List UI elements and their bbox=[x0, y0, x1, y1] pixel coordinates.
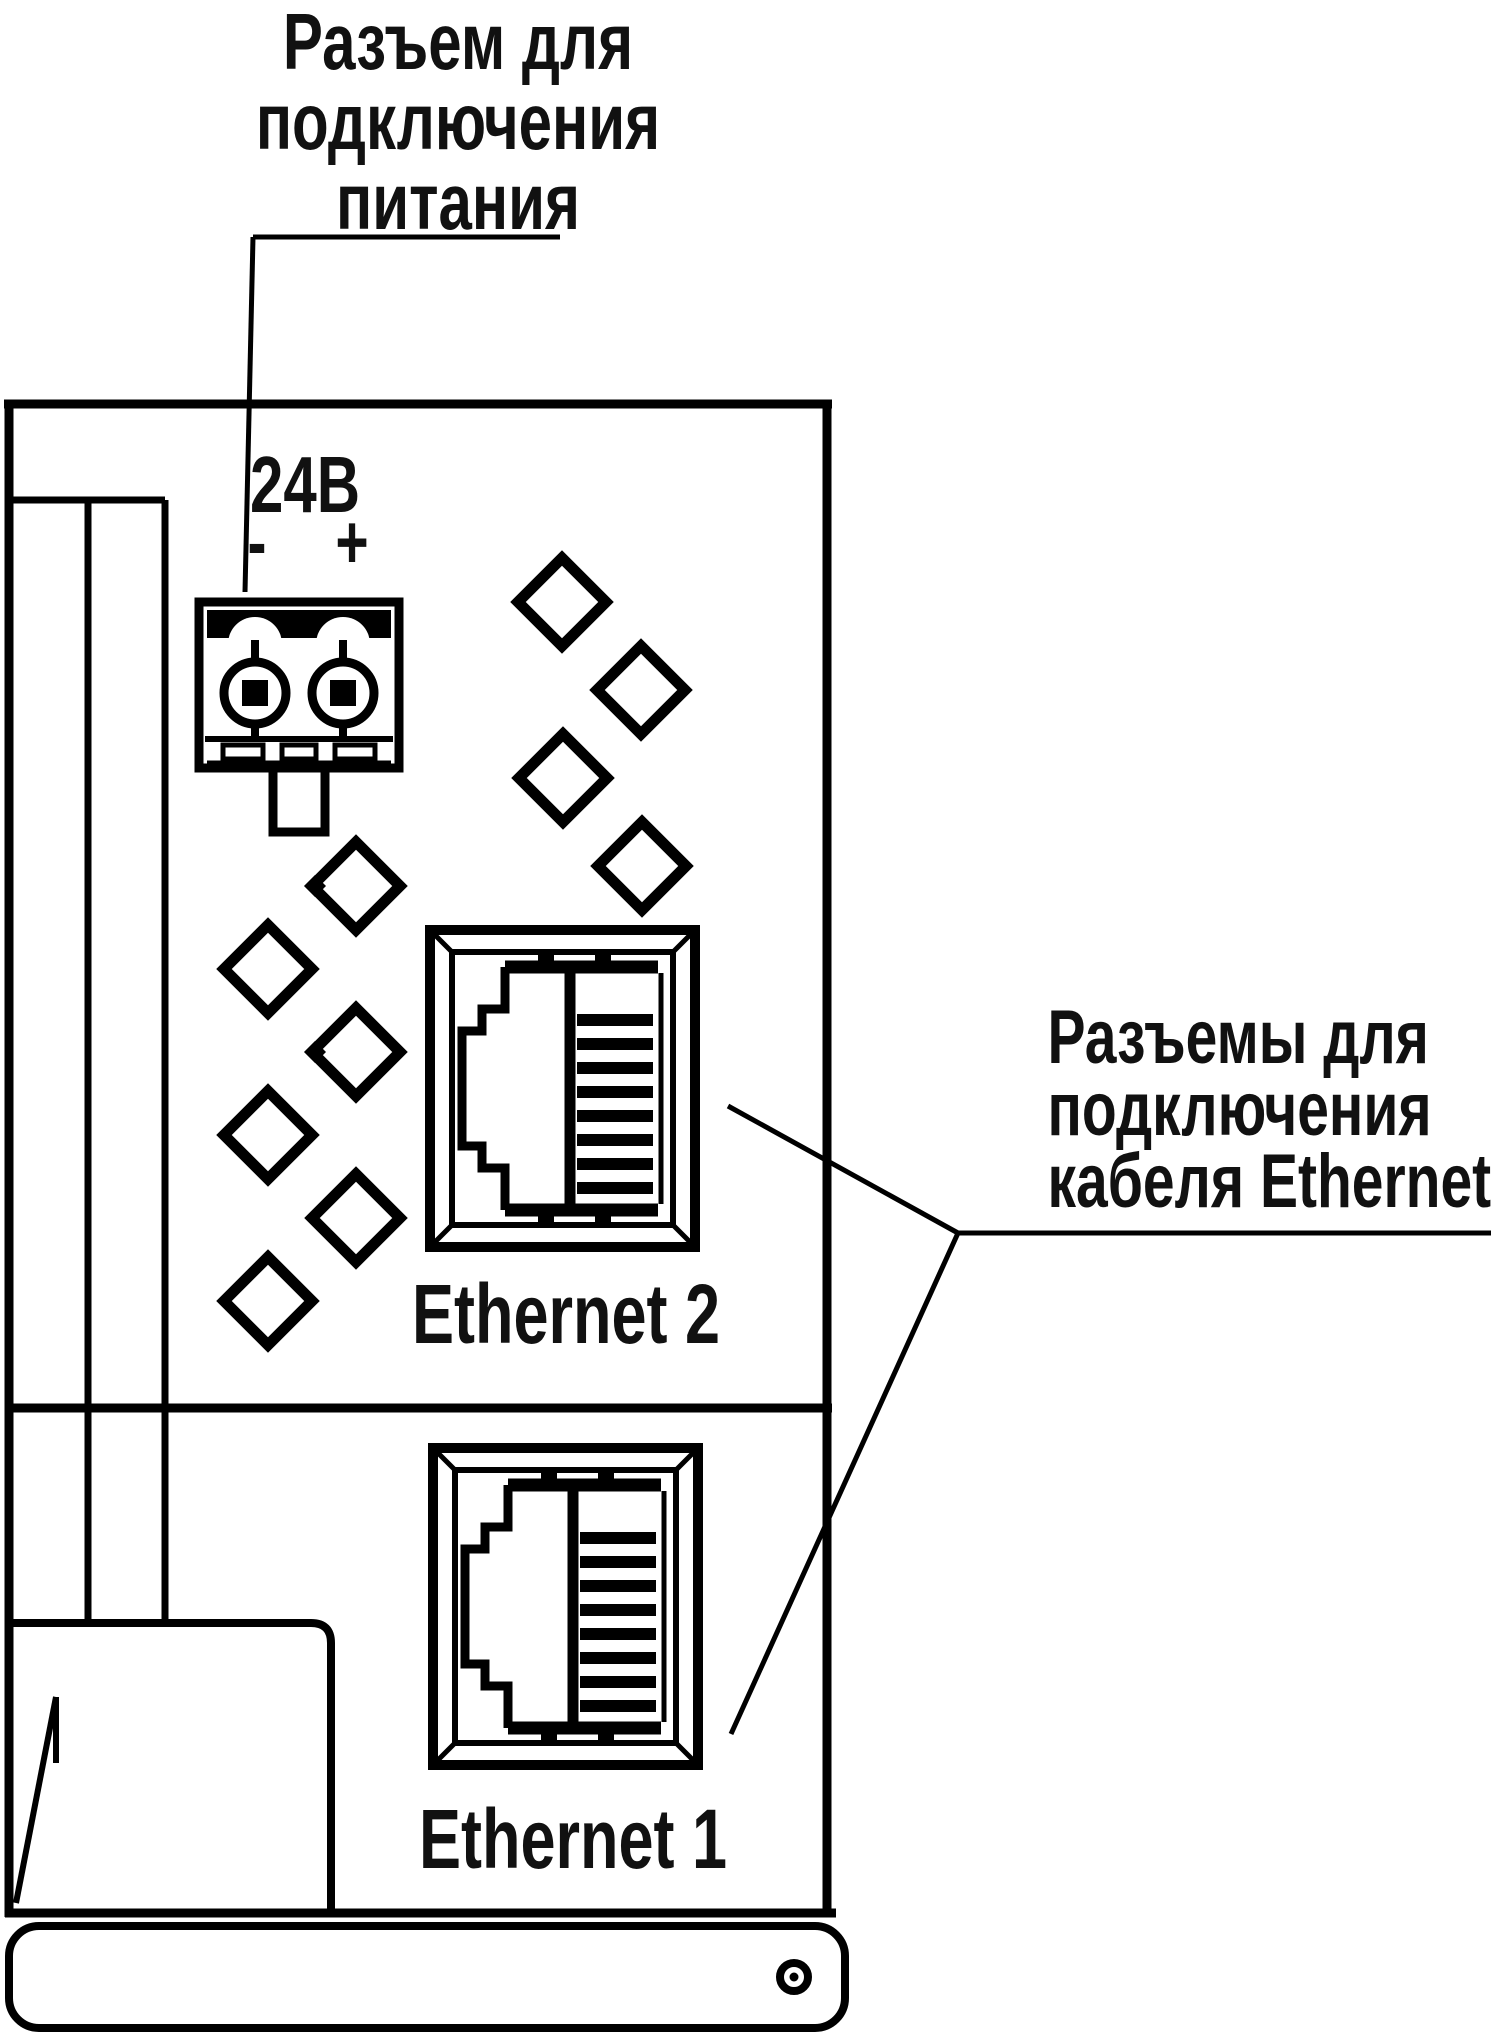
side-wall-lines bbox=[13, 500, 165, 1620]
vent-diamond-icon bbox=[598, 822, 686, 910]
power-terminal-icon bbox=[199, 602, 399, 832]
diagram-canvas: Разъем для подключения питания Разъемы д… bbox=[0, 0, 1491, 2042]
ethernet2-port-icon bbox=[430, 930, 695, 1247]
ethernet-callout-line1: Разъемы для bbox=[1048, 1002, 1423, 1074]
vent-diamond-icon bbox=[224, 925, 312, 1013]
ethernet1-port-icon bbox=[433, 1448, 698, 1765]
bottom-plate bbox=[9, 1926, 845, 2028]
din-rail-clip bbox=[13, 1623, 331, 1910]
vent-diamond-icon bbox=[518, 558, 606, 646]
ethernet-callout-line3: кабеля Ethernet bbox=[1048, 1146, 1423, 1218]
power-callout-line3: питания bbox=[196, 162, 721, 242]
ethernet-callout-label: Разъемы для подключения кабеля Ethernet bbox=[1048, 1002, 1423, 1218]
vent-diamond-notched-icon bbox=[304, 842, 400, 930]
minus-polarity-label: - bbox=[220, 505, 295, 581]
terminal-tab bbox=[273, 768, 325, 832]
ethernet1-leader-line bbox=[731, 1233, 958, 1734]
power-callout-line2: подключения bbox=[196, 82, 721, 162]
power-callout-label: Разъем для подключения питания bbox=[196, 2, 721, 242]
vent-diamond-icon bbox=[224, 1257, 312, 1345]
ethernet2-leader-line bbox=[728, 1106, 958, 1233]
ethernet2-port-label: Ethernet 2 bbox=[412, 1272, 712, 1356]
vent-diamond-icon bbox=[312, 1174, 400, 1262]
vent-diamond-icon bbox=[224, 1091, 312, 1179]
plus-polarity-label: + bbox=[315, 505, 390, 581]
ethernet-callout-line2: подключения bbox=[1048, 1074, 1423, 1146]
device-enclosure bbox=[4, 400, 836, 1917]
vent-diamond-icon bbox=[597, 646, 685, 734]
ethernet1-port-label: Ethernet 1 bbox=[419, 1797, 719, 1881]
screw-icon-center bbox=[790, 1973, 799, 1982]
power-callout-line1: Разъем для bbox=[196, 2, 721, 82]
vent-diamond-notched-icon bbox=[304, 1008, 400, 1096]
vent-diamond-icon bbox=[519, 734, 607, 822]
